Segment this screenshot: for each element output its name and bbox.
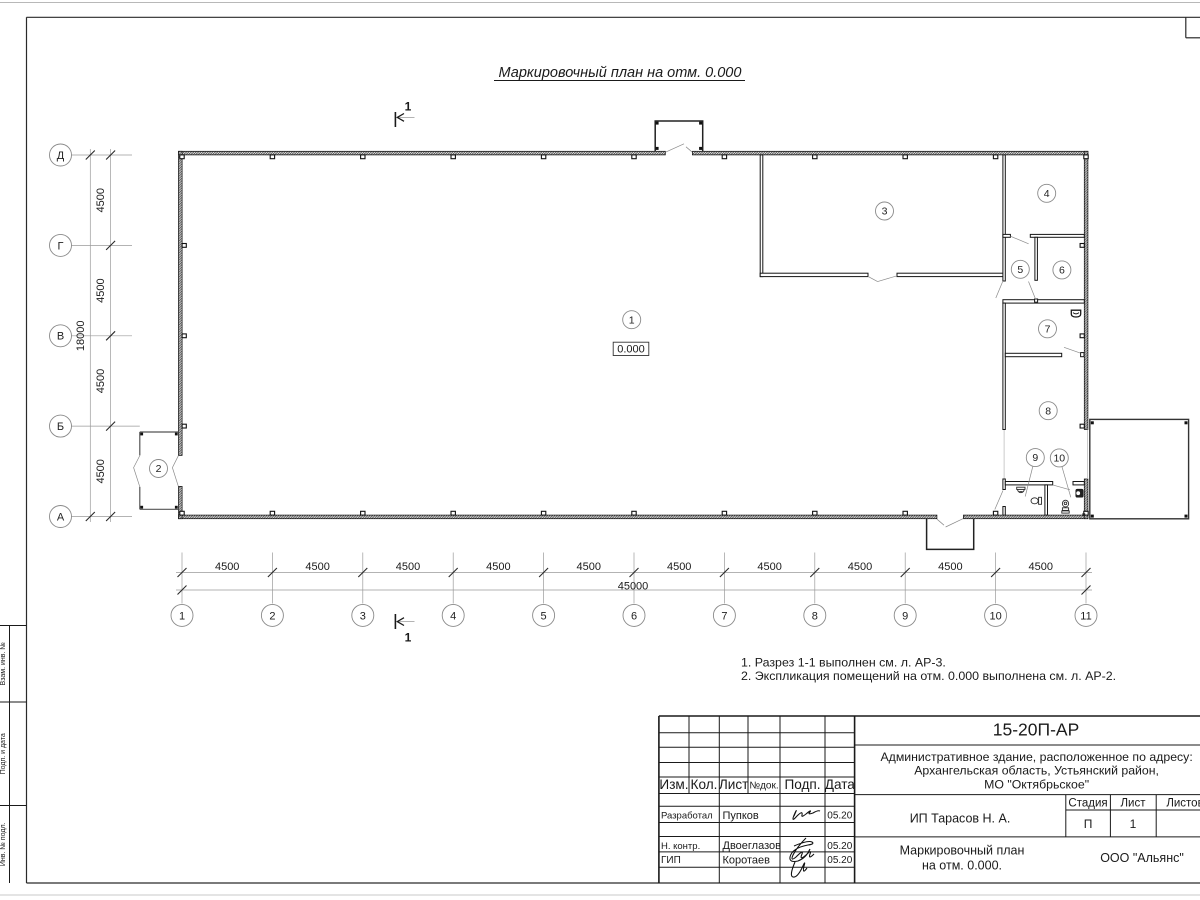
svg-text:15-20П-АР: 15-20П-АР (993, 720, 1080, 740)
svg-text:2. Экспликация помещений на от: 2. Экспликация помещений на отм. 0.000 в… (741, 669, 1116, 683)
svg-text:Д: Д (57, 150, 65, 162)
svg-text:2: 2 (269, 610, 275, 622)
svg-text:8: 8 (812, 610, 818, 622)
svg-text:05.20: 05.20 (827, 811, 852, 822)
svg-text:Архангельская область, Устьянс: Архангельская область, Устьянский район, (914, 763, 1159, 777)
svg-text:3: 3 (360, 610, 366, 622)
svg-text:ИП Тарасов Н. А.: ИП Тарасов Н. А. (910, 812, 1011, 826)
svg-text:Листов: Листов (1166, 797, 1200, 809)
svg-text:5: 5 (1017, 264, 1023, 276)
svg-text:2: 2 (156, 463, 162, 475)
svg-text:Г: Г (58, 240, 64, 252)
svg-text:7: 7 (721, 610, 727, 622)
svg-text:Стадия: Стадия (1068, 797, 1107, 809)
svg-text:9: 9 (902, 610, 908, 622)
svg-text:Маркировочный план на отм. 0.0: Маркировочный план на отм. 0.000 (499, 65, 742, 81)
svg-text:4: 4 (1044, 188, 1050, 200)
svg-text:Административное здание, распо: Административное здание, расположенное п… (880, 750, 1192, 764)
svg-text:П: П (1084, 817, 1093, 831)
svg-text:05.20: 05.20 (827, 841, 852, 852)
svg-text:А: А (57, 511, 65, 523)
svg-text:Лист: Лист (1121, 797, 1147, 809)
svg-text:0.000: 0.000 (617, 344, 645, 356)
svg-text:9: 9 (1032, 452, 1038, 464)
svg-text:1: 1 (1130, 817, 1137, 831)
svg-text:Изм.: Изм. (659, 777, 688, 792)
svg-text:4500: 4500 (577, 561, 601, 573)
svg-text:Дата: Дата (825, 777, 856, 792)
svg-text:4500: 4500 (95, 188, 107, 212)
svg-text:Маркировочный план: Маркировочный план (900, 844, 1025, 858)
svg-text:7: 7 (1045, 323, 1051, 335)
svg-text:18000: 18000 (75, 321, 87, 352)
svg-text:Коротаев: Коротаев (723, 855, 771, 867)
svg-text:1: 1 (179, 610, 185, 622)
svg-text:45000: 45000 (618, 581, 649, 593)
svg-text:4500: 4500 (667, 561, 691, 573)
svg-text:Н. контр.: Н. контр. (661, 841, 700, 852)
svg-text:ООО "Альянс": ООО "Альянс" (1100, 851, 1184, 865)
svg-text:на отм. 0.000.: на отм. 0.000. (922, 858, 1002, 872)
svg-text:4500: 4500 (938, 561, 962, 573)
svg-text:4500: 4500 (1029, 561, 1053, 573)
svg-text:4500: 4500 (757, 561, 781, 573)
svg-text:Подп. и дата: Подп. и дата (0, 733, 7, 774)
svg-text:11: 11 (1080, 610, 1091, 622)
svg-text:1. Разрез 1-1 выполнен см. л.: 1. Разрез 1-1 выполнен см. л. АР-3. (741, 656, 946, 670)
svg-text:10: 10 (1053, 453, 1065, 465)
svg-text:№док.: №док. (749, 781, 778, 792)
svg-text:4500: 4500 (396, 561, 420, 573)
svg-text:Пупков: Пупков (723, 810, 759, 822)
svg-text:В: В (57, 331, 64, 343)
svg-text:4500: 4500 (95, 369, 107, 393)
svg-text:Кол.: Кол. (691, 777, 718, 792)
svg-text:4500: 4500 (95, 278, 107, 302)
svg-text:6: 6 (631, 610, 637, 622)
svg-text:3: 3 (882, 206, 888, 218)
svg-text:1: 1 (629, 314, 635, 326)
svg-text:Двоеглазов: Двоеглазов (723, 840, 782, 852)
svg-text:Разработал: Разработал (661, 811, 713, 822)
svg-text:4500: 4500 (215, 561, 239, 573)
svg-text:4500: 4500 (848, 561, 872, 573)
svg-text:4500: 4500 (95, 459, 107, 483)
svg-text:5: 5 (541, 610, 547, 622)
svg-text:Инв. № подл.: Инв. № подл. (0, 822, 7, 866)
svg-text:8: 8 (1045, 405, 1051, 417)
svg-text:МО "Октябрьское": МО "Октябрьское" (984, 777, 1089, 791)
svg-text:1: 1 (405, 100, 412, 114)
svg-text:10: 10 (989, 610, 1001, 622)
svg-text:05.20: 05.20 (827, 855, 852, 866)
svg-text:4: 4 (450, 610, 456, 622)
svg-text:Взам. инв. №: Взам. инв. № (0, 642, 7, 685)
svg-text:1: 1 (405, 631, 412, 645)
svg-text:Подп.: Подп. (784, 777, 820, 792)
svg-text:6: 6 (1059, 265, 1065, 277)
svg-text:Лист: Лист (719, 777, 749, 792)
svg-text:4500: 4500 (305, 561, 329, 573)
svg-text:4500: 4500 (486, 561, 510, 573)
svg-text:Б: Б (57, 421, 64, 433)
svg-text:ГИП: ГИП (661, 855, 681, 866)
